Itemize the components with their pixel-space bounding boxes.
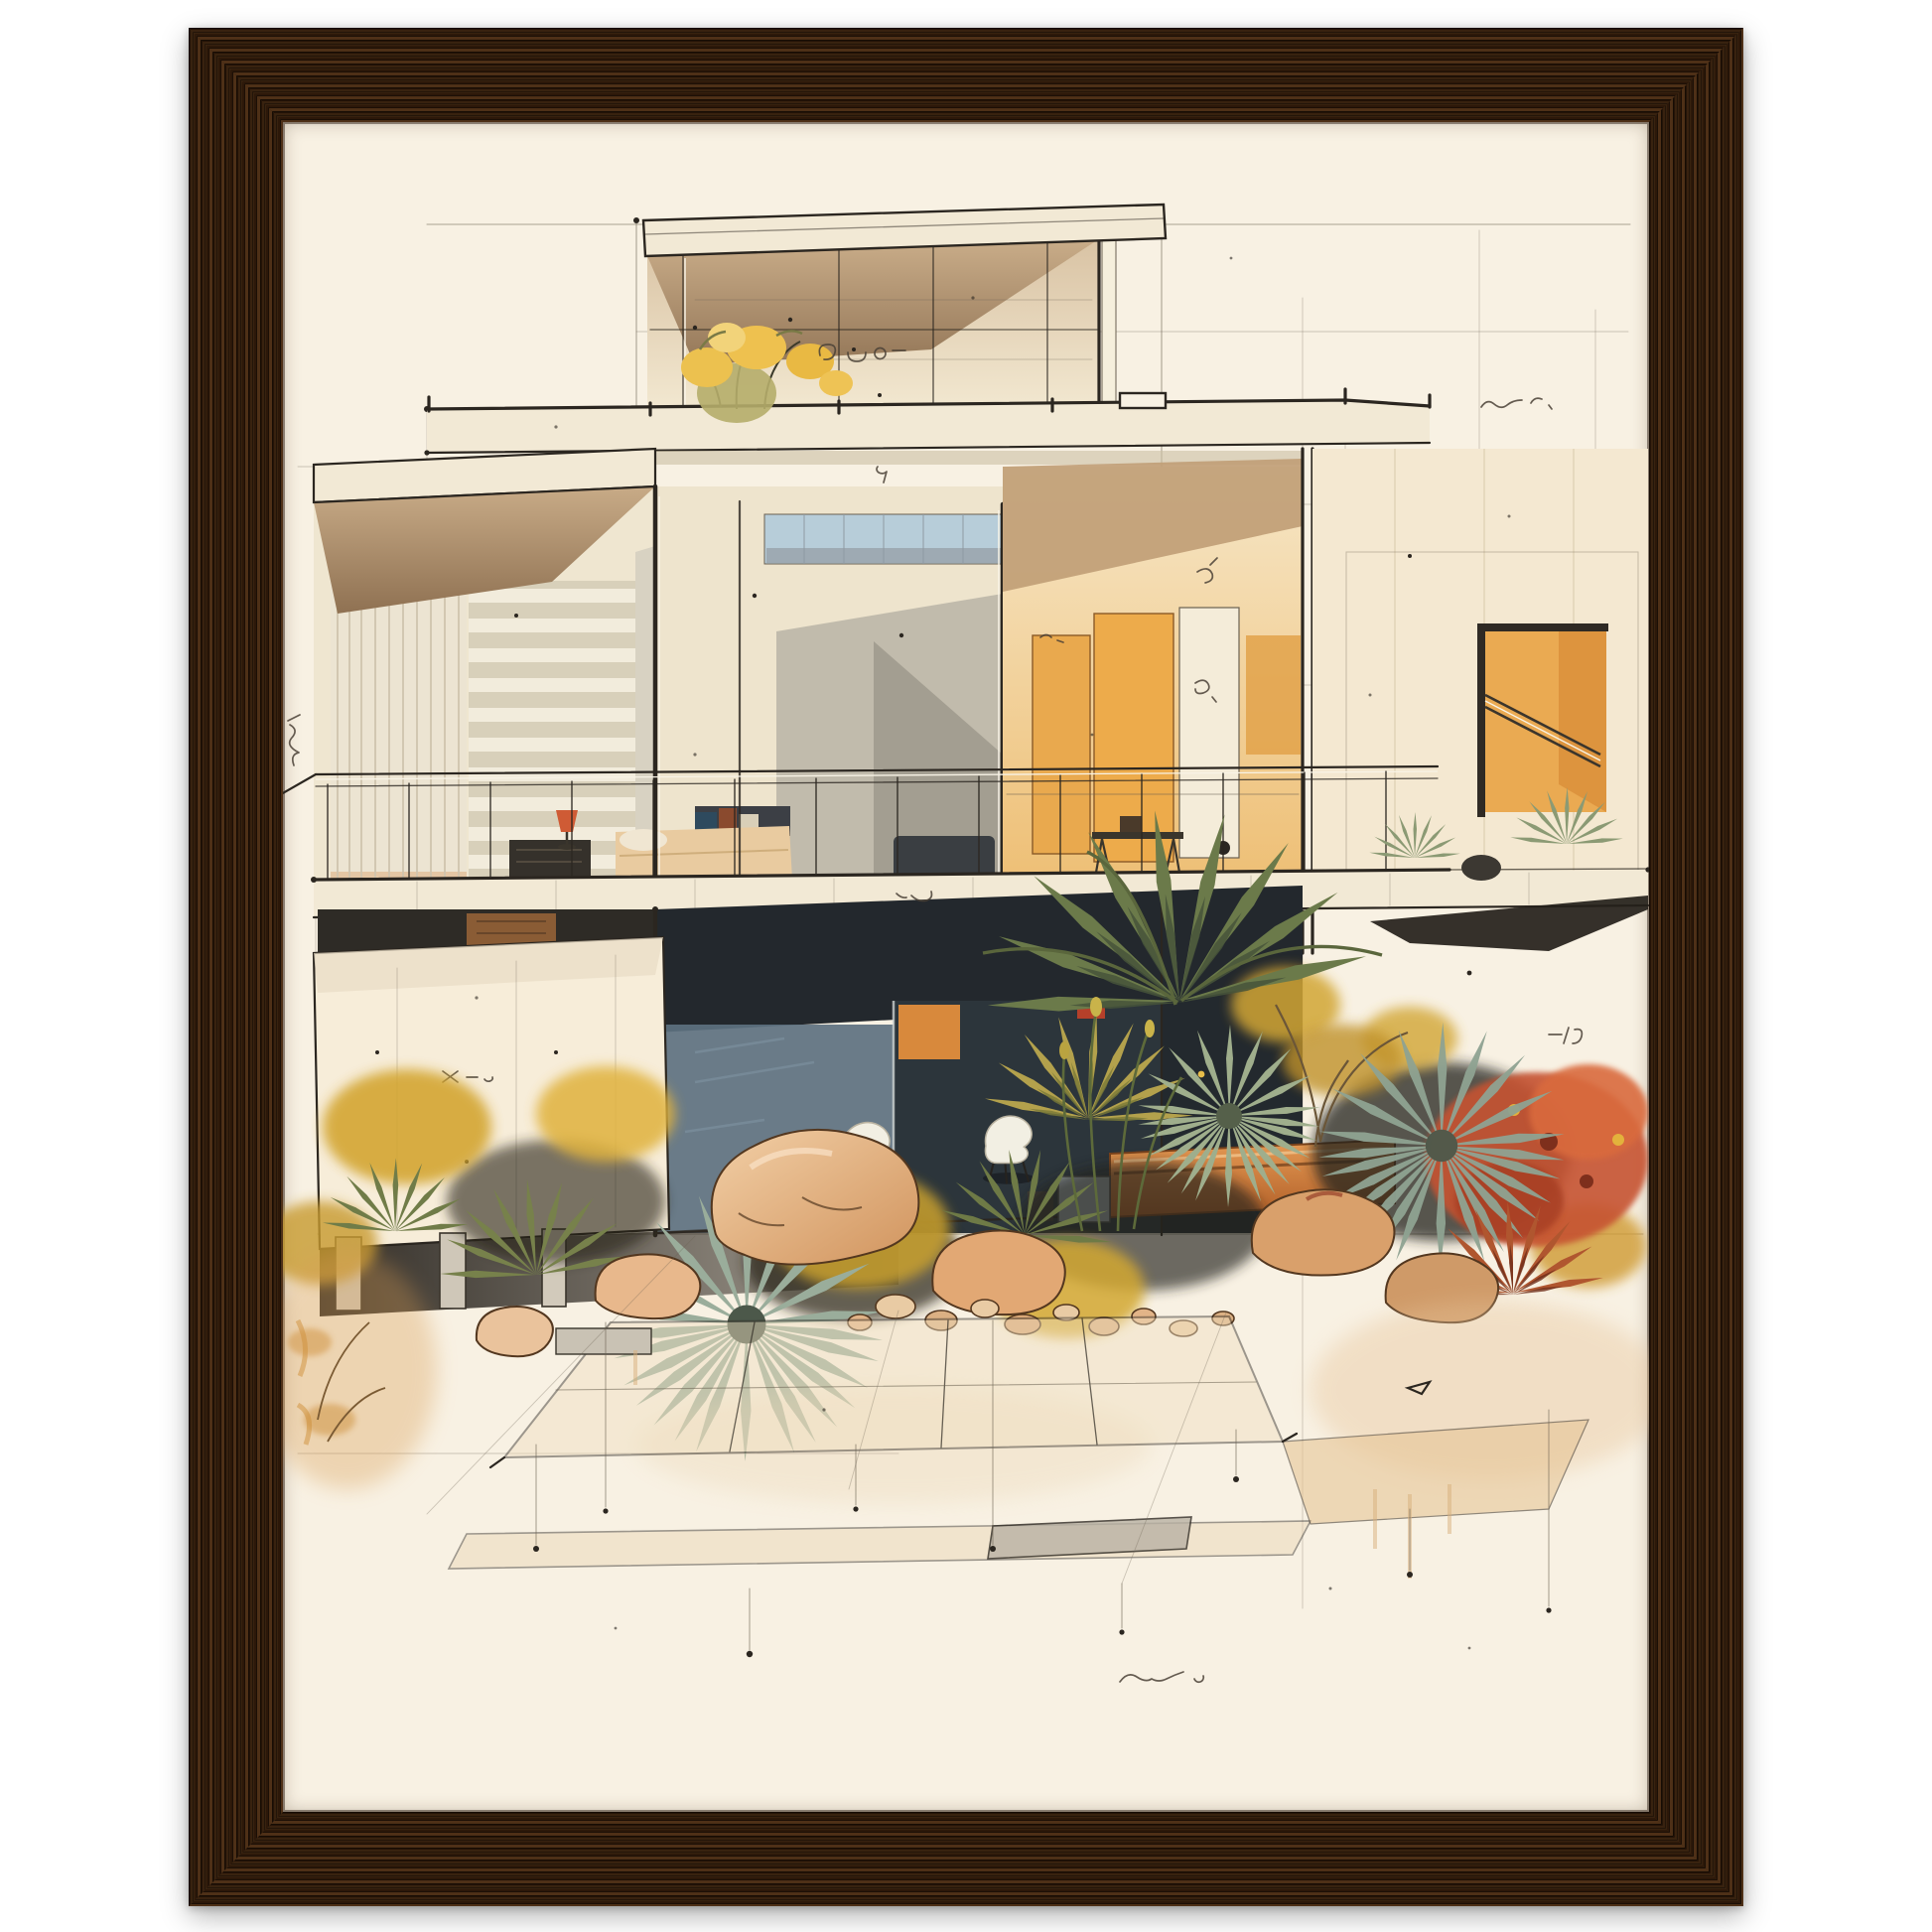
- note-bottom-center: [1120, 1672, 1203, 1682]
- artwork-svg: [283, 122, 1649, 1812]
- frame-bar-left: [189, 28, 283, 1906]
- frame-bar-bottom: [189, 1812, 1743, 1906]
- right-wall: [1312, 449, 1648, 882]
- frame-bar-top: [189, 28, 1743, 122]
- note-left-edge: [288, 715, 300, 765]
- amber-window: [1477, 623, 1608, 817]
- frame-bar-right: [1649, 28, 1743, 1906]
- note-bottom-right: [1549, 1028, 1582, 1043]
- picture-frame: [189, 28, 1743, 1906]
- louver-blind: [469, 581, 635, 879]
- note-top-right: [1481, 398, 1552, 409]
- art-paper: [283, 122, 1649, 1812]
- shell-chair-2: [983, 1116, 1035, 1184]
- right-terrace: [1283, 1420, 1588, 1524]
- product-photo-stage: [0, 0, 1932, 1932]
- note-roof-2: [877, 467, 887, 483]
- orange-cabinet: [1033, 635, 1090, 854]
